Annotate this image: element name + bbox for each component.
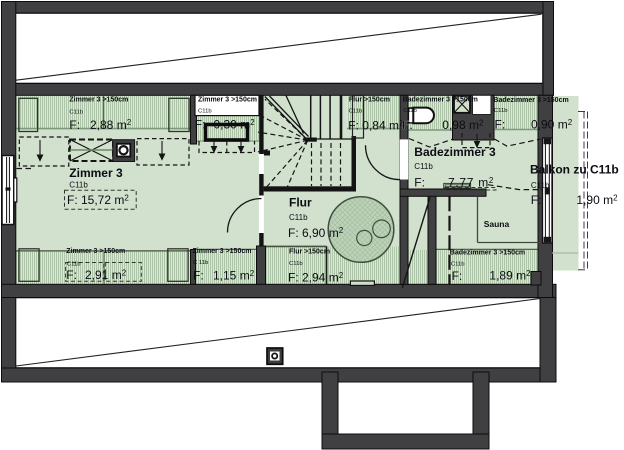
svg-text:C11b: C11b <box>494 108 508 114</box>
svg-text:Flur >150cm: Flur >150cm <box>289 249 330 256</box>
svg-text:C11b: C11b <box>69 180 88 189</box>
svg-text:0,98 m2: 0,98 m2 <box>442 118 484 132</box>
svg-text:7,77 m2: 7,77 m2 <box>448 176 494 190</box>
svg-text:1,90 m2: 1,90 m2 <box>576 193 618 207</box>
svg-text:Badezimmer 3 >150cm: Badezimmer 3 >150cm <box>403 97 478 104</box>
svg-text:Badezimmer 3: Badezimmer 3 <box>414 145 496 159</box>
svg-text:C11b: C11b <box>451 262 465 268</box>
svg-text:0,90 m2: 0,90 m2 <box>531 118 573 132</box>
svg-text:C11b: C11b <box>67 261 81 267</box>
svg-text:F:: F: <box>402 118 413 132</box>
svg-text:C11b: C11b <box>198 109 212 115</box>
svg-text:C11b: C11b <box>414 162 433 171</box>
svg-text:Sauna: Sauna <box>484 219 510 229</box>
svg-text:F:: F: <box>66 268 77 282</box>
svg-text:0,30 m2: 0,30 m2 <box>214 118 256 132</box>
svg-text:Badezimmer 3 >150cm: Badezimmer 3 >150cm <box>493 97 568 104</box>
svg-text:F:: F: <box>495 118 506 132</box>
svg-text:Zimmer 3 >150cm: Zimmer 3 >150cm <box>69 97 128 104</box>
svg-text:F: 15,72 m2: F: 15,72 m2 <box>67 193 129 207</box>
svg-text:Flur >150cm: Flur >150cm <box>349 97 390 104</box>
svg-text:Zimmer 3 >150cm: Zimmer 3 >150cm <box>198 97 257 104</box>
svg-text:Zimmer 3 >150cm: Zimmer 3 >150cm <box>193 248 252 255</box>
svg-text:F:: F: <box>452 269 463 283</box>
svg-text:Zimmer 3: Zimmer 3 <box>69 166 123 180</box>
svg-text:C11b: C11b <box>289 261 303 267</box>
svg-text:F:: F: <box>193 269 204 283</box>
svg-text:Balkon zu C11b: Balkon zu C11b <box>530 162 619 176</box>
svg-text:Zimmer 3 >150cm: Zimmer 3 >150cm <box>66 248 125 255</box>
svg-text:F:: F: <box>414 176 425 190</box>
svg-text:C 11b: C 11b <box>193 260 209 266</box>
svg-text:F: 0,84 m2: F: 0,84 m2 <box>348 119 404 133</box>
svg-text:C11b: C11b <box>289 213 308 222</box>
svg-text:1,15 m2: 1,15 m2 <box>213 269 255 283</box>
svg-text:F: 6,90 m2: F: 6,90 m2 <box>288 226 344 240</box>
svg-text:Flur: Flur <box>289 196 312 210</box>
svg-text:C11b: C11b <box>69 110 83 116</box>
svg-text:2,88 m2: 2,88 m2 <box>90 118 132 132</box>
svg-text:2,91 m2: 2,91 m2 <box>85 268 127 282</box>
svg-text:F:: F: <box>69 118 80 132</box>
svg-text:F:: F: <box>195 118 206 132</box>
svg-text:1,89 m2: 1,89 m2 <box>489 269 531 283</box>
svg-text:F: 2,94 m2: F: 2,94 m2 <box>288 271 344 285</box>
svg-text:Badezimmer 3 >150cm: Badezimmer 3 >150cm <box>450 249 525 256</box>
svg-text:C11b: C11b <box>403 108 417 114</box>
svg-text:C11b: C11b <box>531 181 550 190</box>
svg-text:F:: F: <box>531 193 542 207</box>
svg-text:C11b: C11b <box>349 109 363 115</box>
